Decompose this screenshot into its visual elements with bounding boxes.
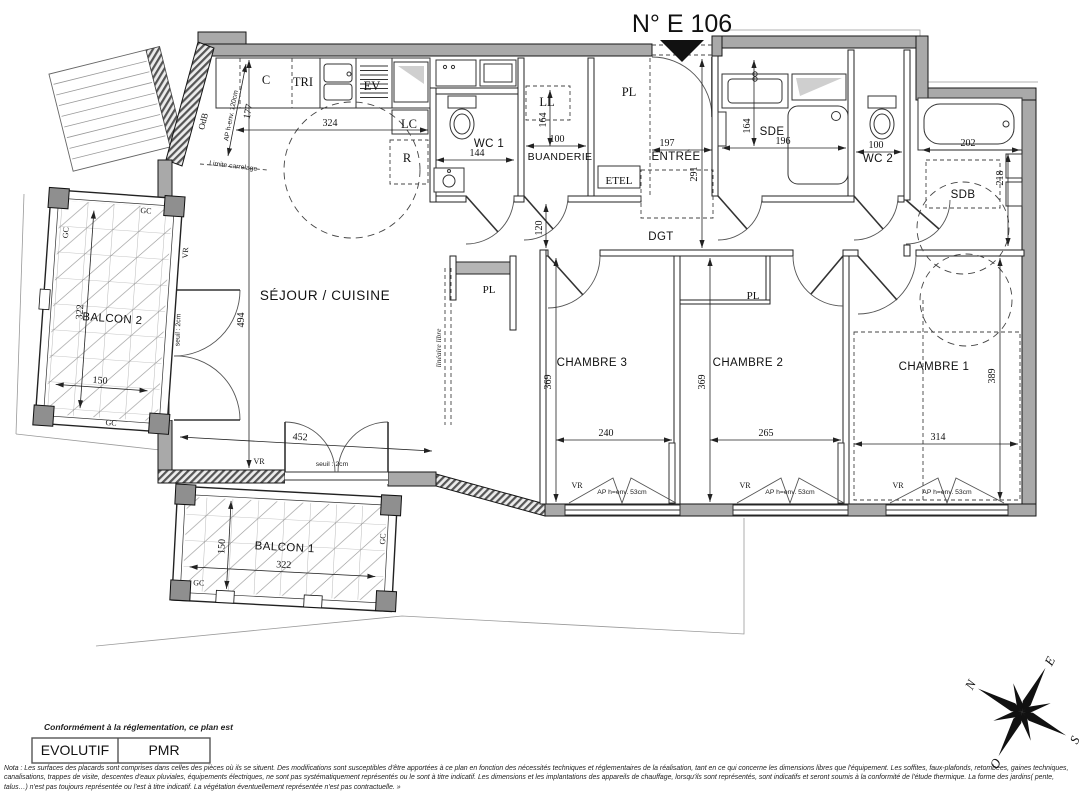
dim-ch1-length: 389 <box>987 369 998 384</box>
dim-wc2-width: 100 <box>869 140 884 151</box>
room-sde: SDE <box>760 126 785 138</box>
dim-buanderie-depth: 164 <box>538 113 549 128</box>
room-entree: ENTRÉE <box>651 150 700 163</box>
room-wc1: WC 1 <box>474 138 504 150</box>
room-ch2: CHAMBRE 2 <box>713 357 784 369</box>
vr-label: VR <box>739 481 751 490</box>
gc-label: GC <box>378 533 388 545</box>
balcon2: 322 150 BALCON 2 GC GC GC <box>31 187 185 434</box>
dim-kitchen-width: 324 <box>323 118 338 129</box>
balcon1: 150 322 BALCON 1 GC GC <box>170 484 402 612</box>
dim-sejour-length: 494 <box>236 313 247 328</box>
vr-label: VR <box>892 481 904 490</box>
dim-ch2-length: 369 <box>697 375 708 390</box>
vr-label: VR <box>253 457 265 466</box>
dim-balcon1-depth: 150 <box>216 539 228 555</box>
code-pl-entree: PL <box>622 85 637 99</box>
dim-sdb-depth: 218 <box>995 171 1006 186</box>
dim-balcon2-width: 150 <box>92 375 108 387</box>
code-c: C <box>262 73 270 87</box>
shower-tray <box>788 106 848 184</box>
dim-entree-width: 197 <box>660 138 675 149</box>
plan-disclaimer-note: Nota : Les surfaces des placards sont co… <box>4 764 1076 792</box>
doors <box>156 196 950 484</box>
limite-label: Limite carrelage <box>209 160 258 173</box>
wc1-fixtures <box>434 96 476 192</box>
entrance <box>652 40 712 117</box>
lineaire-label: linéaire libre <box>434 328 443 367</box>
window-ch1: VR AP h=env. 53cm <box>886 478 1008 515</box>
code-ll: LL <box>539 95 554 109</box>
legend-caption: Conformément à la réglementation, ce pla… <box>44 722 234 732</box>
radiator <box>718 112 726 146</box>
code-ev: EV <box>364 79 381 93</box>
code-etel: ETEL <box>606 175 633 187</box>
bedroom-windows: VR AP h=env. 53cm VR AP h=env. 53cm VR A… <box>565 478 1008 515</box>
dim-balcon1-width: 322 <box>276 559 292 571</box>
room-wc2: WC 2 <box>863 153 893 165</box>
room-sejour: SÉJOUR / CUISINE <box>260 288 390 303</box>
seuil-label: seuil : 2cm <box>174 313 182 346</box>
compass-n: N <box>961 676 979 693</box>
hand-basin <box>434 168 464 192</box>
dim-entree-length: 291 <box>689 167 700 182</box>
dim-sdb-width: 202 <box>961 138 976 149</box>
window-jambs <box>669 443 844 503</box>
room-ch3: CHAMBRE 3 <box>557 357 628 369</box>
code-r: R <box>403 151 412 165</box>
ap53-label: AP h=env. 53cm <box>765 489 815 496</box>
ap53-label: AP h=env. 53cm <box>597 489 647 496</box>
dim-dgt-width: 120 <box>534 221 545 236</box>
neighbour-stairs <box>49 47 184 172</box>
gc-label: GC <box>193 578 205 588</box>
toilet-tank <box>448 96 476 108</box>
gc-label: GC <box>61 227 71 239</box>
compass-s: S <box>1066 733 1080 746</box>
dim-buanderie-width: 100 <box>550 134 565 145</box>
legend-pmr: PMR <box>148 742 179 758</box>
room-dgt: DGT <box>648 231 673 243</box>
legend: Conformément à la réglementation, ce pla… <box>32 722 234 763</box>
wc2-fixtures <box>868 96 896 139</box>
code-lc: LC <box>401 117 417 131</box>
ap120-label: AP h-env. 120cm <box>223 89 240 141</box>
compass-e: E <box>1041 654 1058 669</box>
sdb-fixtures <box>917 98 1022 274</box>
room-sdb: SDB <box>951 189 976 201</box>
plan-title: N° E 106 <box>632 10 732 38</box>
hatched-band-balcon1 <box>436 474 545 516</box>
seuil-label: seuil : 2cm <box>316 461 349 468</box>
gc-label: GC <box>140 206 152 216</box>
pl-shelf <box>456 262 510 274</box>
window-ch2: VR AP h=env. 53cm <box>733 478 848 515</box>
ap53-label: AP h=env. 53cm <box>922 489 972 496</box>
dim-sejour-width: 452 <box>292 432 308 444</box>
dim-ch3-width: 240 <box>599 428 614 439</box>
room-ch1: CHAMBRE 1 <box>899 361 970 373</box>
gc-label: GC <box>105 418 117 428</box>
toilet-tank <box>868 96 896 108</box>
code-pl-sejour: PL <box>483 284 496 296</box>
vr-label: VR <box>181 247 190 259</box>
floor-plan-sheet: N° E 106 <box>0 0 1080 800</box>
sejour-south-wall-hatched <box>158 470 285 483</box>
room-buanderie: BUANDERIE <box>528 151 593 163</box>
dim-ch1-width: 314 <box>931 432 946 443</box>
upper-left-wall-stub <box>198 32 246 44</box>
dim-kitchen-clear: 177 <box>242 103 256 120</box>
dim-ch3-length: 369 <box>543 375 554 390</box>
dim-ch2-width: 265 <box>759 428 774 439</box>
legend-evolutif: EVOLUTIF <box>41 742 109 758</box>
window-ch3: VR AP h=env. 53cm <box>565 478 680 515</box>
dim-sde-depth: 164 <box>742 119 753 134</box>
code-odb: OdB <box>196 112 210 131</box>
floor-plan-drawing: N° E 106 <box>0 0 1080 800</box>
ch1-dashed-zone <box>854 332 1020 500</box>
code-pl-ch2: PL <box>747 290 760 302</box>
code-tri: TRI <box>293 75 313 89</box>
vr-label: VR <box>571 481 583 490</box>
